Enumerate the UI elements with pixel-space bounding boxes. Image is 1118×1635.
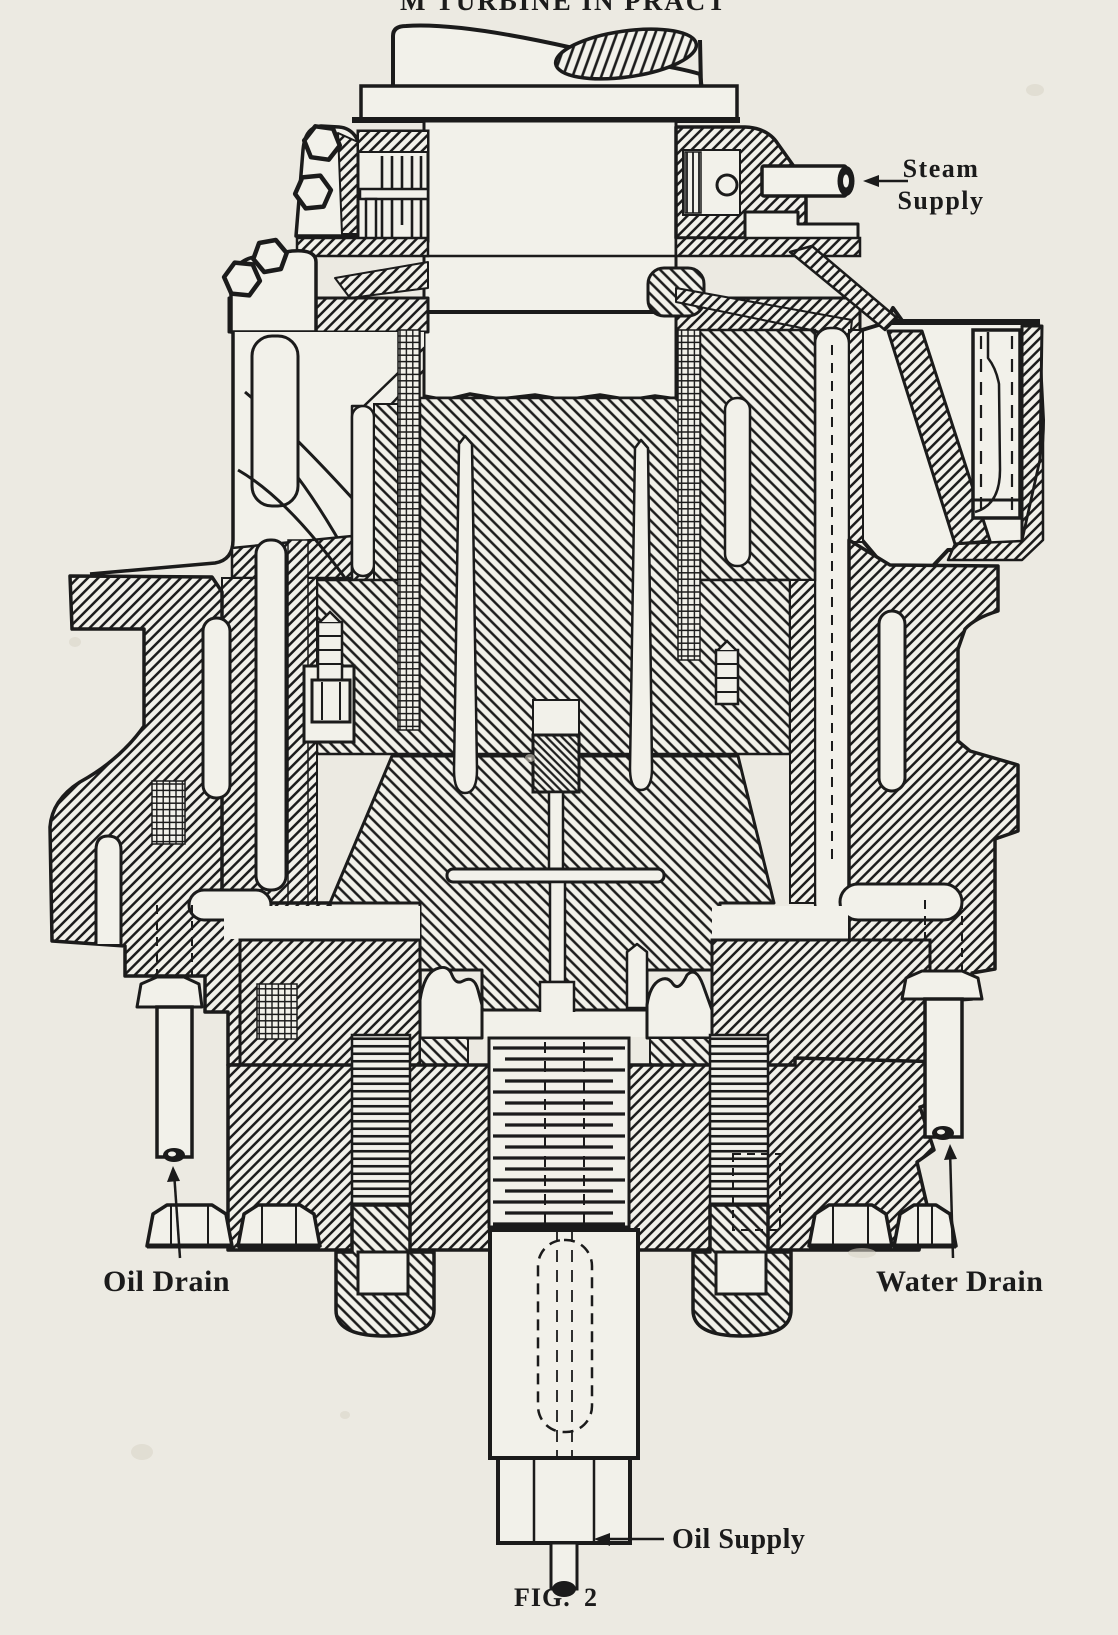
- svg-text:Steam: Steam: [903, 154, 980, 183]
- svg-text:Oil Supply: Oil Supply: [672, 1524, 805, 1555]
- svg-text:Water Drain: Water Drain: [876, 1265, 1043, 1298]
- svg-text:FIG.: FIG.: [514, 1583, 571, 1612]
- svg-text:Supply: Supply: [897, 186, 984, 215]
- svg-text:M TURBINE IN PRACT: M TURBINE IN PRACT: [400, 0, 727, 16]
- svg-text:Oil Drain: Oil Drain: [103, 1265, 230, 1298]
- svg-text:2: 2: [584, 1583, 597, 1612]
